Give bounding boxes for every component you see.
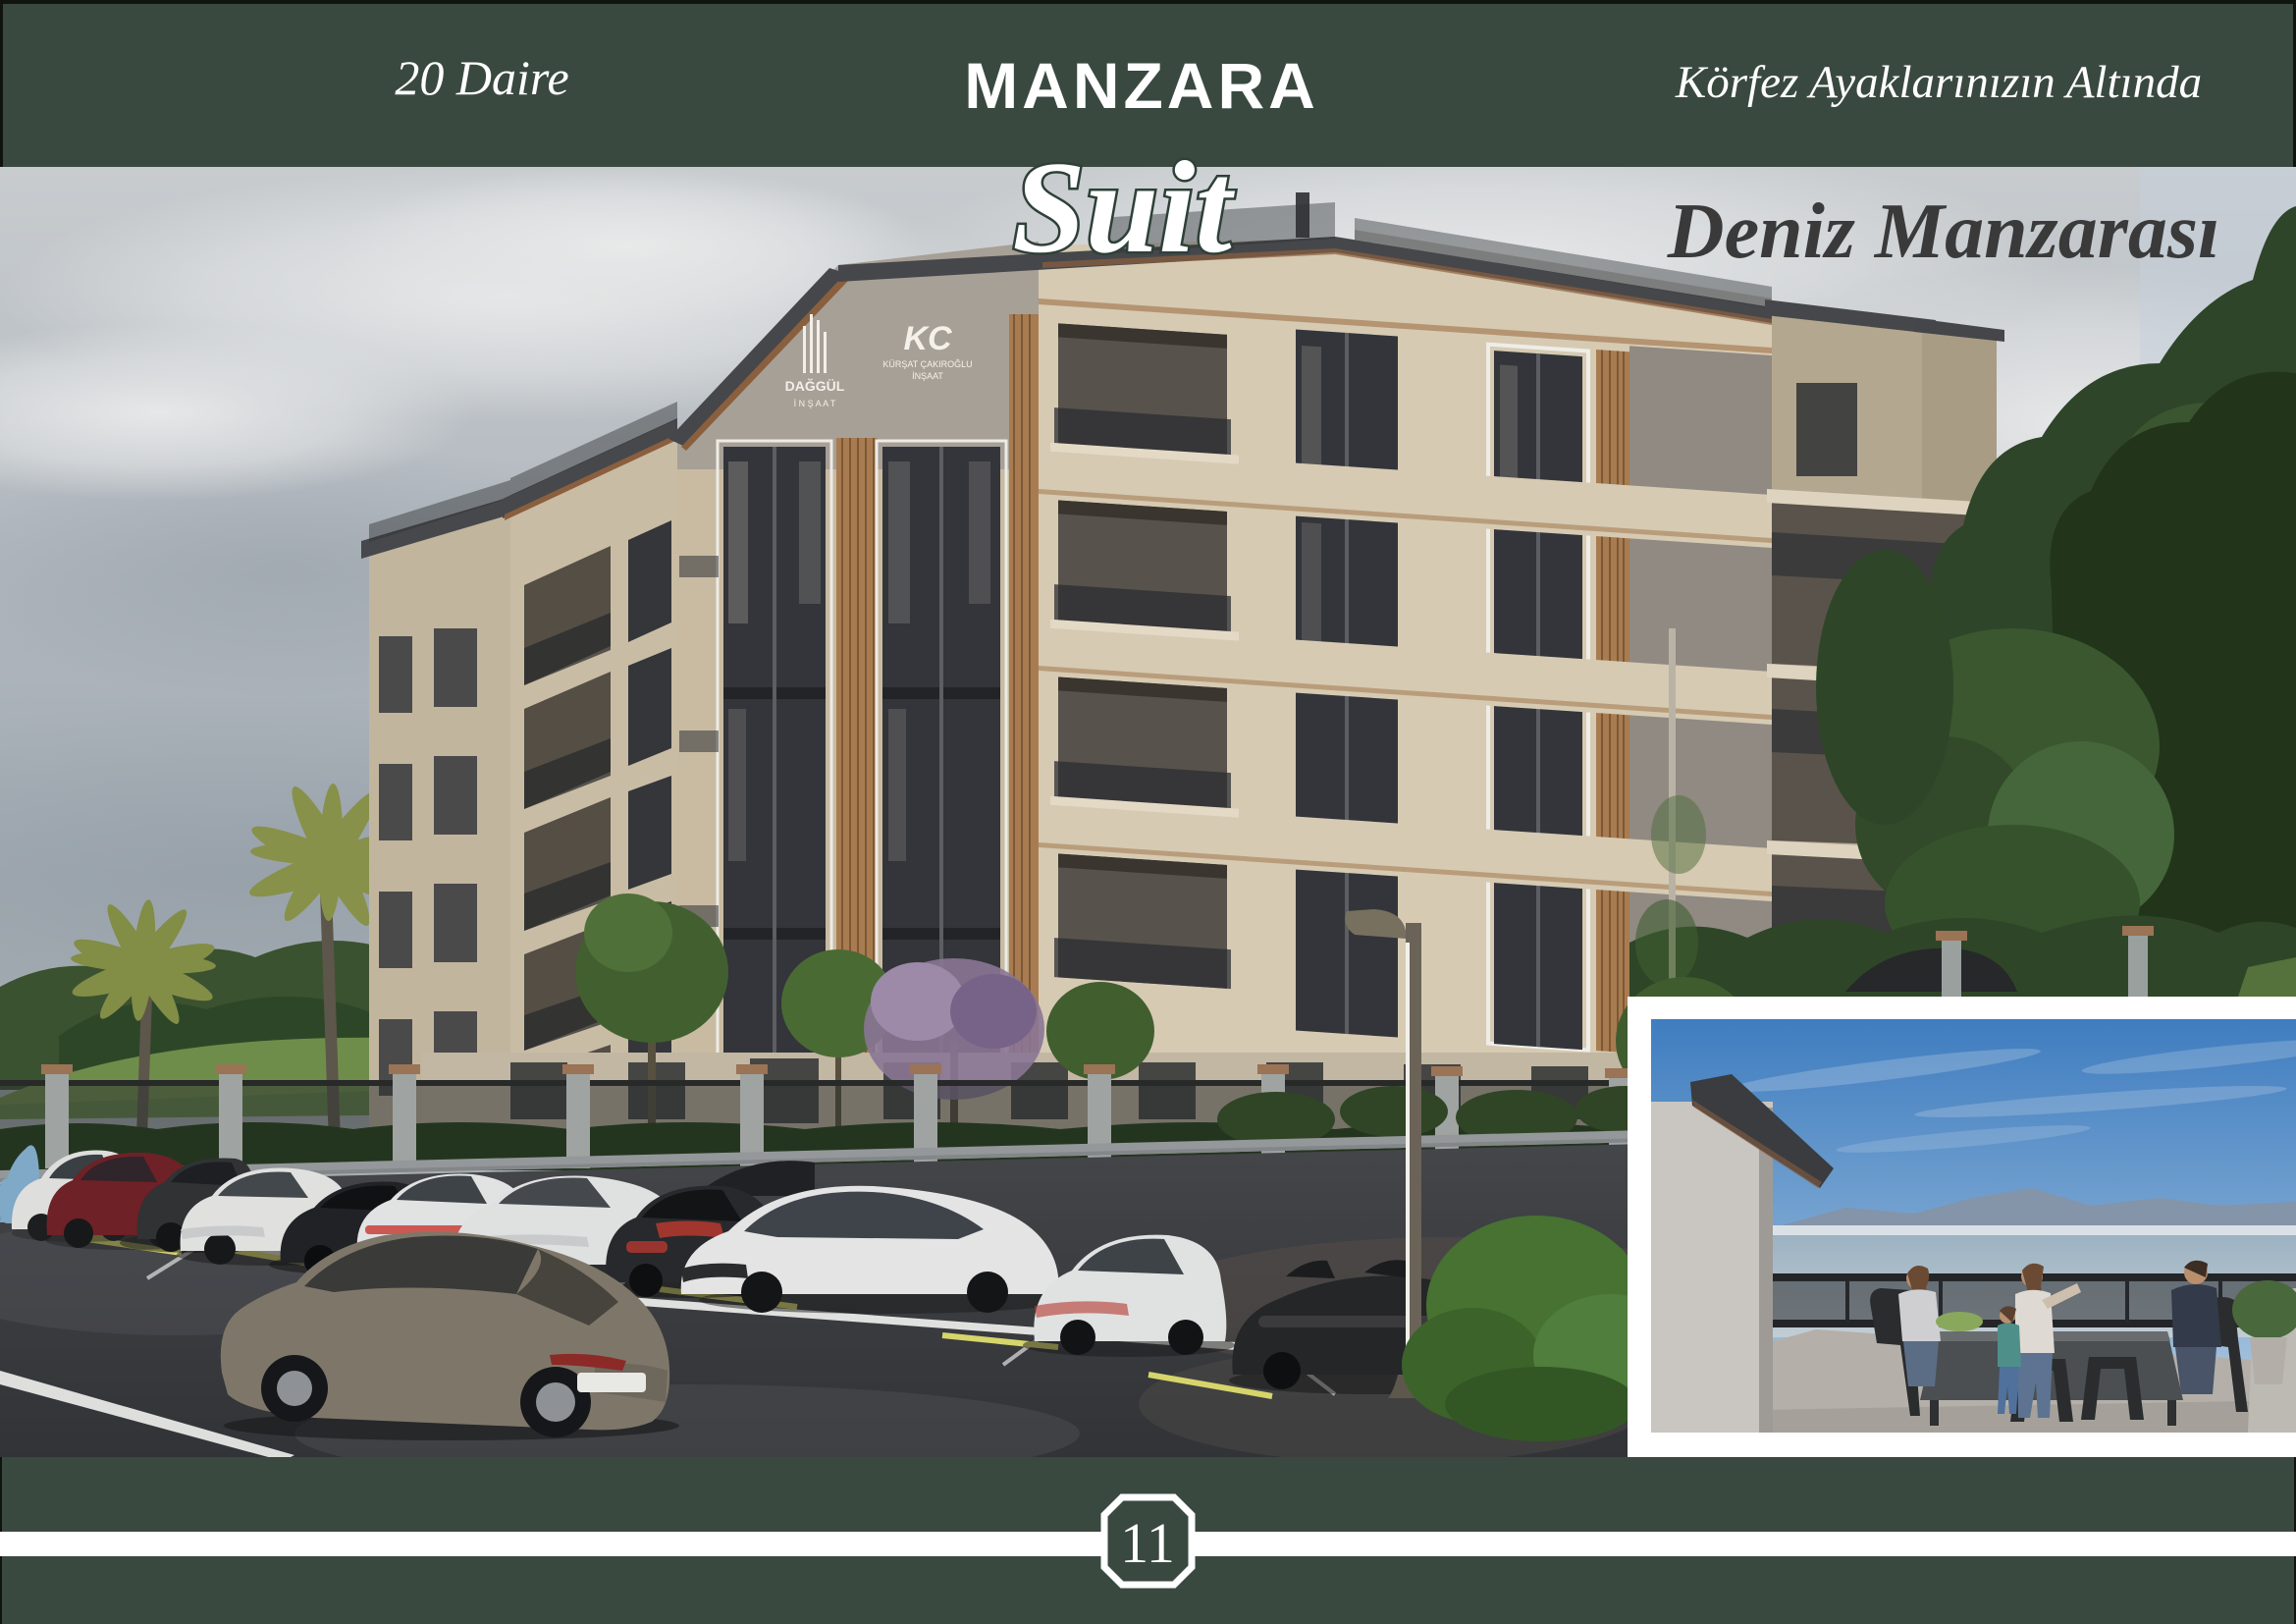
svg-text:KC: KC bbox=[903, 320, 952, 357]
svg-text:11: 11 bbox=[1120, 1511, 1175, 1575]
svg-text:MANZARA: MANZARA bbox=[964, 49, 1319, 122]
svg-text:İNŞAAT: İNŞAAT bbox=[912, 371, 943, 381]
svg-text:DAĞGÜL: DAĞGÜL bbox=[785, 377, 845, 394]
svg-text:KÜRŞAT ÇAKIROĞLU: KÜRŞAT ÇAKIROĞLU bbox=[882, 359, 972, 369]
svg-text:Suit: Suit bbox=[1012, 135, 1235, 280]
svg-text:İ N Ş A A T: İ N Ş A A T bbox=[794, 399, 836, 408]
svg-text:Deniz Manzarası: Deniz Manzarası bbox=[1667, 189, 2219, 275]
svg-text:20 Daire: 20 Daire bbox=[395, 50, 568, 105]
svg-text:Körfez Ayaklarınızın Altında: Körfez Ayaklarınızın Altında bbox=[1675, 57, 2202, 108]
